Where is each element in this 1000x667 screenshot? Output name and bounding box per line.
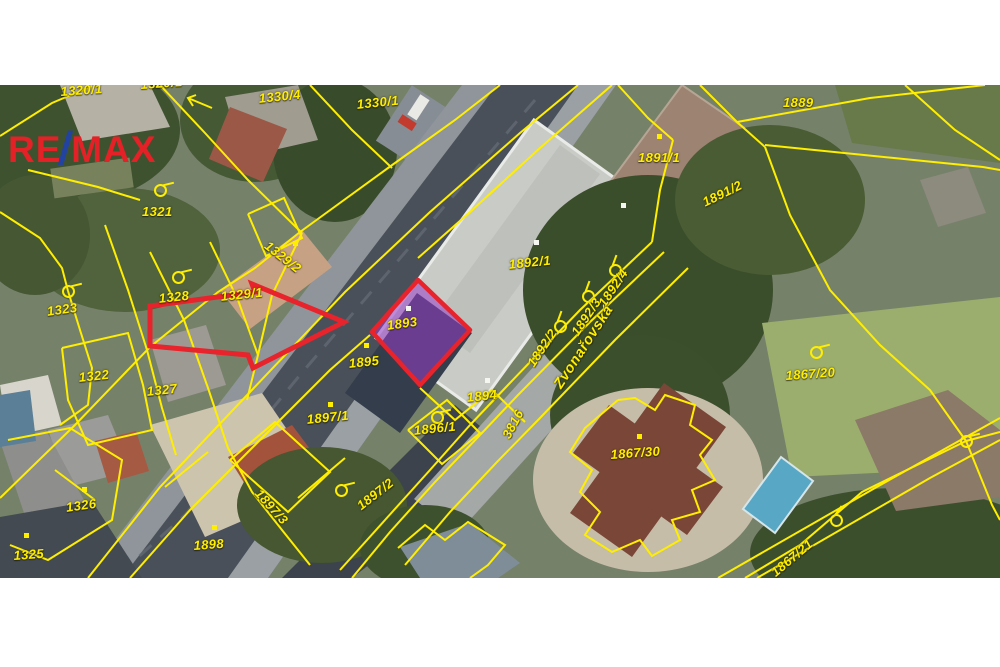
parcel-label-1897-3: 1897/3 bbox=[252, 486, 291, 527]
survey-point-dot bbox=[657, 134, 662, 139]
parcel-label-1330-1: 1330/1 bbox=[356, 93, 400, 112]
survey-point-dot bbox=[212, 525, 217, 530]
survey-point-dot bbox=[621, 203, 626, 208]
bottom-margin bbox=[0, 578, 1000, 667]
top-margin bbox=[0, 0, 1000, 85]
parcel-label-1329-1: 1329/1 bbox=[220, 285, 264, 304]
boundary-marker-icon bbox=[172, 271, 185, 284]
survey-point-dot bbox=[637, 434, 642, 439]
parcel-label-1325: 1325 bbox=[13, 546, 45, 563]
parcel-label-3816: 3816 bbox=[499, 407, 527, 441]
parcel-label-1895: 1895 bbox=[348, 353, 380, 371]
parcel-label-1893: 1893 bbox=[386, 314, 418, 333]
parcel-label-1321: 1321 bbox=[142, 204, 173, 219]
boundary-marker-icon bbox=[335, 484, 348, 497]
parcel-label-1330-4: 1330/4 bbox=[258, 87, 302, 106]
parcel-label-1892-1: 1892/1 bbox=[508, 253, 552, 272]
parcel-label-1898: 1898 bbox=[193, 536, 225, 553]
parcel-label-1897-1: 1897/1 bbox=[306, 408, 350, 427]
survey-point-dot bbox=[364, 343, 369, 348]
survey-point-dot bbox=[82, 487, 87, 492]
survey-point-dot bbox=[328, 402, 333, 407]
survey-point-dot bbox=[534, 240, 539, 245]
parcel-label-1328: 1328 bbox=[158, 288, 190, 306]
parcel-label-1897-2: 1897/2 bbox=[354, 475, 396, 513]
survey-point-dot bbox=[24, 533, 29, 538]
survey-point-dot bbox=[485, 378, 490, 383]
parcel-label-1327: 1327 bbox=[146, 381, 178, 399]
boundary-marker-icon bbox=[810, 346, 823, 359]
boundary-marker-icon bbox=[62, 285, 75, 298]
parcel-label-1326: 1326 bbox=[65, 496, 97, 515]
parcel-label-1891-2: 1891/2 bbox=[700, 178, 744, 210]
parcel-label-1323: 1323 bbox=[46, 300, 78, 319]
parcel-label-1891-1: 1891/1 bbox=[638, 150, 680, 165]
remax-logo: RE/MAX bbox=[8, 126, 156, 170]
boundary-marker-icon bbox=[827, 511, 845, 529]
parcel-label-1892-2: 1892/2 bbox=[524, 326, 560, 369]
boundary-marker-icon bbox=[154, 184, 167, 197]
survey-point-dot bbox=[293, 241, 298, 246]
survey-point-dot bbox=[406, 306, 411, 311]
parcel-label-1322: 1322 bbox=[78, 367, 110, 385]
map-screenshot: RE/MAX bbox=[0, 0, 1000, 667]
parcel-label-1320-1: 1320/1 bbox=[140, 85, 183, 92]
remax-logo-max: MAX bbox=[71, 129, 156, 170]
parcel-label-1889: 1889 bbox=[783, 95, 814, 110]
parcel-label-1867-20: 1867/20 bbox=[785, 365, 836, 383]
parcel-label-1867-30: 1867/30 bbox=[610, 444, 661, 462]
parcel-label-1894: 1894 bbox=[466, 387, 498, 405]
parcel-label-1867-21: 1867/21 bbox=[768, 536, 816, 578]
boundary-marker-icon bbox=[960, 435, 973, 448]
parcel-label-1896-1: 1896/1 bbox=[413, 419, 457, 438]
parcel-label-1320-1: 1320/1 bbox=[60, 85, 103, 99]
remax-logo-re: RE bbox=[8, 129, 61, 170]
parcel-label-1892-4: 1892/4 bbox=[595, 266, 631, 309]
